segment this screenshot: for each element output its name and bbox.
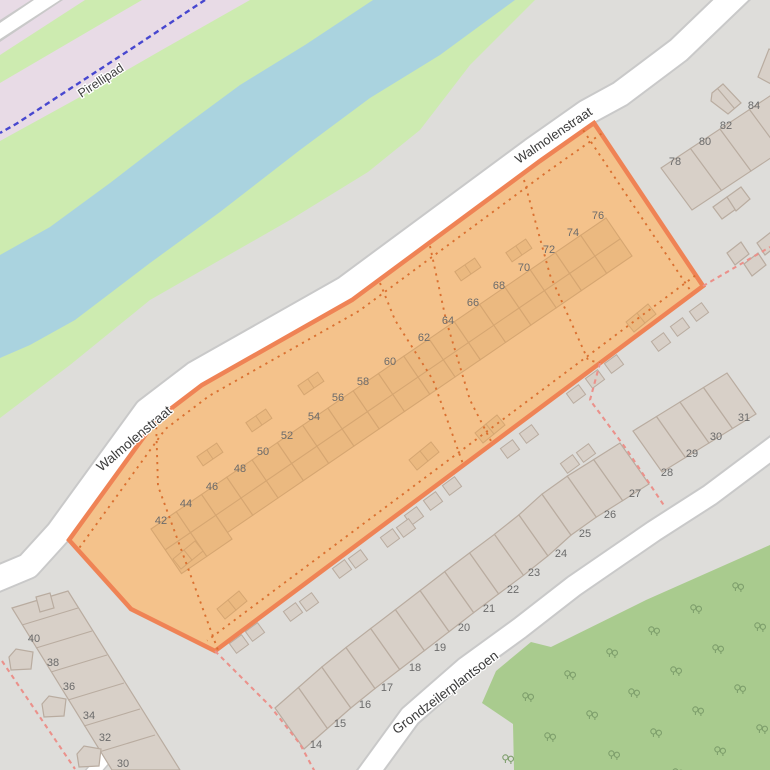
svg-text:20: 20 — [458, 622, 470, 634]
svg-text:62: 62 — [418, 332, 430, 344]
svg-text:66: 66 — [467, 297, 479, 309]
svg-text:15: 15 — [334, 718, 346, 730]
svg-text:54: 54 — [308, 411, 320, 423]
svg-text:74: 74 — [567, 227, 579, 239]
svg-text:80: 80 — [699, 136, 711, 148]
svg-text:26: 26 — [604, 509, 616, 521]
svg-text:27: 27 — [629, 488, 641, 500]
svg-text:16: 16 — [359, 699, 371, 711]
svg-text:36: 36 — [63, 681, 75, 693]
svg-text:76: 76 — [592, 210, 604, 222]
svg-text:52: 52 — [281, 430, 293, 442]
svg-text:78: 78 — [669, 156, 681, 168]
svg-text:38: 38 — [47, 657, 59, 669]
svg-text:64: 64 — [442, 315, 454, 327]
svg-text:60: 60 — [384, 356, 396, 368]
svg-text:25: 25 — [579, 528, 591, 540]
svg-text:19: 19 — [434, 642, 446, 654]
svg-text:44: 44 — [180, 498, 192, 510]
svg-text:70: 70 — [518, 262, 530, 274]
svg-text:72: 72 — [543, 244, 555, 256]
svg-text:48: 48 — [234, 463, 246, 475]
svg-text:58: 58 — [357, 376, 369, 388]
svg-text:30: 30 — [710, 431, 722, 443]
svg-text:14: 14 — [310, 739, 322, 751]
svg-text:46: 46 — [206, 481, 218, 493]
svg-text:42: 42 — [155, 515, 167, 527]
svg-text:23: 23 — [528, 567, 540, 579]
svg-text:29: 29 — [686, 448, 698, 460]
svg-text:32: 32 — [99, 732, 111, 744]
svg-text:21: 21 — [483, 603, 495, 615]
svg-text:31: 31 — [738, 412, 750, 424]
svg-text:34: 34 — [83, 710, 95, 722]
svg-text:30: 30 — [117, 758, 129, 770]
svg-text:50: 50 — [257, 446, 269, 458]
svg-text:40: 40 — [28, 633, 40, 645]
svg-text:18: 18 — [409, 662, 421, 674]
svg-text:84: 84 — [748, 100, 760, 112]
svg-text:68: 68 — [493, 280, 505, 292]
svg-text:28: 28 — [661, 467, 673, 479]
svg-text:56: 56 — [332, 392, 344, 404]
svg-text:22: 22 — [507, 584, 519, 596]
svg-text:82: 82 — [720, 120, 732, 132]
svg-text:24: 24 — [555, 548, 567, 560]
svg-text:17: 17 — [381, 682, 393, 694]
